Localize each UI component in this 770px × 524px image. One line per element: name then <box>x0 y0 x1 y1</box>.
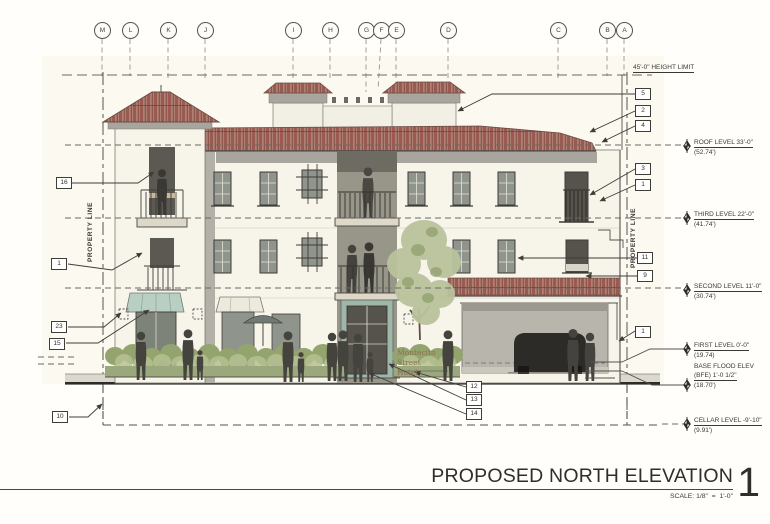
callout-13: 13 <box>466 394 482 406</box>
grid-marker-K: K <box>160 22 177 39</box>
grid-marker-I: I <box>285 22 302 39</box>
callout-4: 4 <box>635 120 651 132</box>
level-label-third: THIRD LEVEL 22'-0"(41.74') <box>694 210 754 229</box>
level-label-roof: ROOF LEVEL 33'-0"(52.74') <box>694 138 753 157</box>
sheet-title: PROPOSED NORTH ELEVATION <box>431 465 733 488</box>
level-label-bfe: BASE FLOOD ELEV(BFE) 1'-0 1/2"(18.70') <box>694 362 754 390</box>
callout-3: 3 <box>635 163 651 175</box>
grid-marker-L: L <box>122 22 139 39</box>
callout-14: 14 <box>466 408 482 420</box>
property-line-label-right: PROPERTY LINE <box>630 208 637 268</box>
callout-12: 12 <box>466 381 482 393</box>
callout-11: 11 <box>637 252 653 264</box>
grid-marker-M: M <box>94 22 111 39</box>
callout-10: 10 <box>52 411 68 423</box>
car-silhouette <box>508 333 592 374</box>
callout-9: 9 <box>637 270 653 282</box>
scale-note: SCALE: 1/8" = 1'-0" <box>670 493 733 500</box>
grid-marker-H: H <box>322 22 339 39</box>
roof-tiles <box>205 126 597 163</box>
callout-1-left: 1 <box>51 258 67 270</box>
title-rule <box>0 489 733 490</box>
garage-pent-roof <box>446 278 622 296</box>
grid-marker-C: C <box>550 22 567 39</box>
callout-2: 2 <box>635 105 651 117</box>
cellar-outline <box>103 385 660 425</box>
building-elevation-drawing <box>0 0 770 524</box>
property-line-label-left: PROPERTY LINE <box>87 202 94 262</box>
building-sign: Montecito Street Hotel <box>397 348 453 378</box>
grid-marker-D: D <box>440 22 457 39</box>
grid-marker-A: A <box>616 22 633 39</box>
elevation-markers <box>684 139 690 431</box>
callout-16: 16 <box>56 177 72 189</box>
level-label-second: SECOND LEVEL 11'-0"(30.74') <box>694 282 762 301</box>
level-label-cellar: CELLAR LEVEL -9'-10"(9.91') <box>694 416 762 435</box>
grid-marker-E: E <box>388 22 405 39</box>
callout-15: 15 <box>49 338 65 350</box>
callout-1-right-lower: 1 <box>635 326 651 338</box>
sheet-number: 1 <box>737 459 760 506</box>
callout-23: 23 <box>51 321 67 333</box>
elevation-sheet: M L K J I H G F E D C B A 45'-0" HEIGHT … <box>0 0 770 524</box>
height-limit-label: 45'-0" HEIGHT LIMIT <box>633 64 694 73</box>
grid-marker-J: J <box>197 22 214 39</box>
grid-marker-B: B <box>599 22 616 39</box>
callout-5: 5 <box>635 88 651 100</box>
callout-1-right-upper: 1 <box>635 179 651 191</box>
level-label-first: FIRST LEVEL 0'-0"(19.74) <box>694 341 749 360</box>
